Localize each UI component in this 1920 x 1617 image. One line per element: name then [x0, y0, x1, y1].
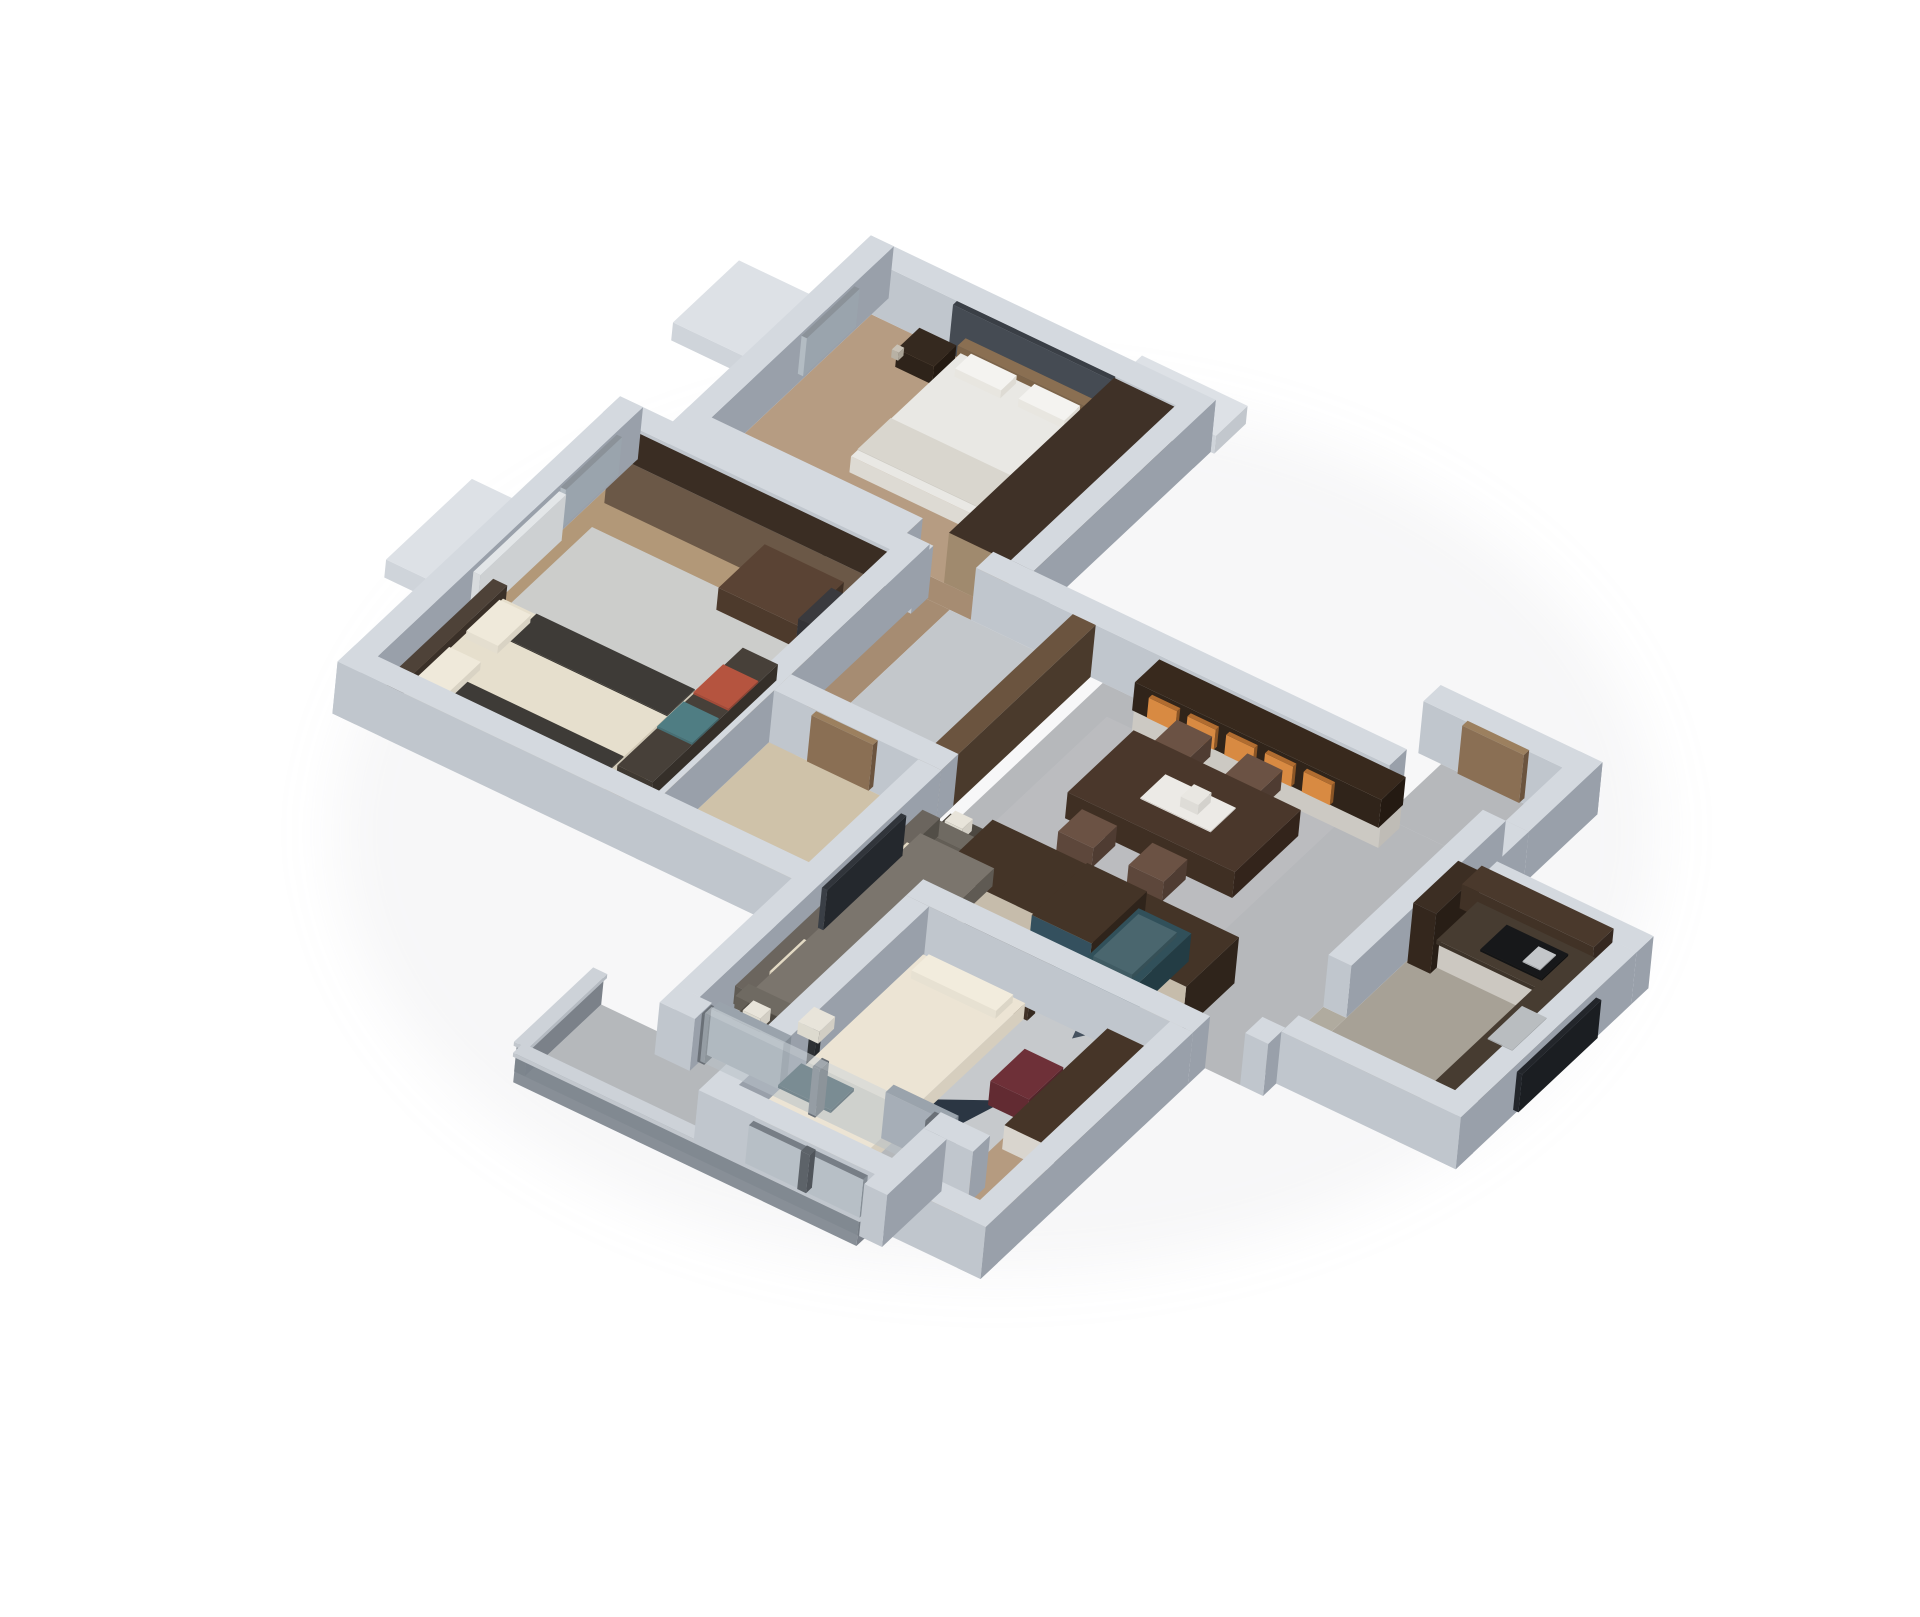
apartment-3d-floorplan-render — [0, 0, 1920, 1617]
floorplan-render-page — [0, 0, 1920, 1617]
